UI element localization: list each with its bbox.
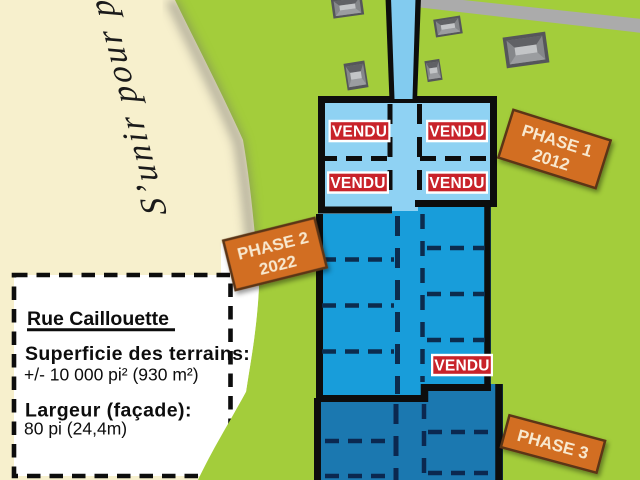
svg-text:80 pi (24,4m): 80 pi (24,4m) bbox=[24, 419, 127, 439]
svg-text:Superficie des terrains:: Superficie des terrains: bbox=[25, 343, 250, 365]
svg-text:Rue Caillouette: Rue Caillouette bbox=[27, 308, 169, 330]
svg-text:+/- 10 000 pi² (930 m²): +/- 10 000 pi² (930 m²) bbox=[24, 365, 199, 385]
